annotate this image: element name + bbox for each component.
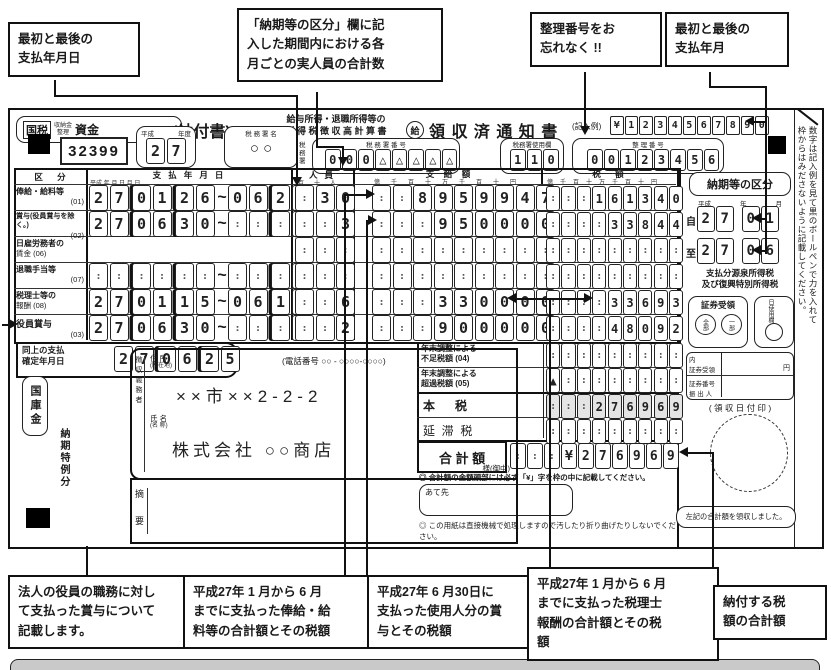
connector-line [686,452,712,454]
era-label: 平成 [141,128,154,138]
arrowhead [679,447,688,457]
registration-mark [768,136,786,154]
noki-kubun-title: 納期等の区分 [689,172,791,196]
salary-circle-mark: 給 [406,121,424,139]
yen-label: 円 [783,363,790,373]
row-02-pay-cells[interactable]: 950000 [372,211,557,237]
row-01-tax-cells[interactable]: 161340 [546,186,684,211]
seiri-number-header: 整 理 番 号 [573,139,723,149]
page: 最初と最後の支払年月日 「納期等の区分」欄に記入した期間内における各月ごとの実人… [0,0,831,670]
row-07-people-cells[interactable] [295,263,357,289]
registration-mark [28,134,50,154]
noki-from-cells[interactable]: 2701 [697,206,780,232]
callout-first-last-pay-date: 最初と最後の支払年月日 [8,22,140,77]
hontax-cells[interactable]: 276969 [546,394,684,419]
row-03-tax-cells[interactable]: 48092 [546,316,684,341]
fund-label-seiri: 整理 [54,130,72,137]
receipt-date-stamp-label: ( 領 収 日 付 印 ) [687,402,793,414]
receipt-date-stamp-circle[interactable] [710,414,788,492]
arrowhead [366,189,375,199]
tokurei-label: 納期特例分 [56,428,71,488]
treasury-seal: 国庫金 [22,376,48,436]
connector-line [712,452,714,585]
side-note-line2: 枠からはみださないように記載してください。 [796,126,807,534]
row-label-02: 賞与(役員賞与を除く。)(02) [16,213,84,240]
row-02-people-cells[interactable]: 3 [295,211,357,237]
row-03-pay-cells[interactable]: 900000 [372,315,557,341]
row-08-date-cells[interactable]: 270115~0615 [89,289,312,315]
stamp-part[interactable]: 一部 [721,314,742,335]
connector-line [344,194,368,196]
fund-label-shikin: 資金 [75,121,99,138]
fusoku-cells[interactable] [546,343,684,368]
tax-office-name-header: 税 務 署 名 [225,128,297,138]
callout-seiri-number: 整理番号をお忘れなく !! [530,12,662,67]
kakutei-label: 同上の支払 確定年月日 [22,345,65,367]
address-label: 住 所 (所在地) [150,354,172,370]
arrowhead [9,319,18,329]
payment-slip-form: 国税 収納金 整理 資金 (納付書) 給与所得・退職所得等の 所 得 税 徴 収… [8,108,824,549]
connector-line [765,86,767,254]
noki-to-cells[interactable]: 2706 [697,238,780,264]
fiscal-year-box: 平成 年度 27 [136,126,196,168]
received-total-pill: 左記の合計額を領収しました。 [676,506,796,528]
choka-cells[interactable]: ▲ [546,368,684,393]
arrowhead [507,293,516,303]
arrowhead [580,126,590,135]
nendo-label: 年度 [178,128,191,138]
total-amount-cells[interactable]: ¥276969 [510,443,680,469]
next-section-bar [10,659,820,670]
row-08-tax-cells[interactable]: 33693 [546,290,684,315]
date-stamp-use-label: 日使用欄 [766,299,775,323]
callout-salary-total: 平成27年 1 月から 6 月までに支払った俸給・給料等の合計額とその税額 [183,575,377,649]
connector-line [549,298,551,567]
row-07-pay-cells[interactable] [372,263,557,289]
entai-cells[interactable] [546,419,684,444]
connector-line [296,95,298,179]
form-code-box: 32399 [60,137,128,165]
connector-line [752,121,766,123]
row-01-people-cells[interactable]: 30 [295,185,357,211]
connector-line [54,95,298,97]
address-value: ××市××2-2-2 [176,382,322,407]
callout-total-tax: 納付する税額の合計額 [713,585,827,640]
securities-receipt-box: 証券受領 全部 一部 [688,296,748,348]
row-03-people-cells[interactable]: 2 [295,315,357,341]
phone-number: (電話番号 ○○ - ○○○○-○○○○) [282,355,386,367]
tax-office-name-box[interactable]: 税 務 署 名 ○ ○ [224,126,298,168]
row-02-tax-cells[interactable]: 33844 [546,212,684,237]
arrowhead [368,215,377,225]
date-stamp-use-box: 日使用欄 [754,296,794,348]
registration-mark [26,508,50,528]
row-08-people-cells[interactable]: 6 [295,289,357,315]
callout-zeirishi-fee: 平成27年 1 月から 6 月までに支払った税理士報酬の合計額とその税額 [527,567,719,661]
row-06-pay-cells[interactable] [372,237,557,263]
arrowhead [338,157,348,166]
row-01-date-cells[interactable]: 270126~0625 [89,185,312,211]
tax-office-name-value: ○ ○ [225,140,297,157]
arrowhead [745,116,754,126]
connector-line [316,92,318,148]
callout-first-last-pay-month: 最初と最後の支払年月 [665,12,789,67]
corner-fold-mark [797,108,819,126]
securities-receipt-label: 証券受領 [689,299,747,311]
tekiyo-box[interactable]: 摘 要 [130,478,518,544]
stamp-all[interactable]: 全部 [695,314,716,335]
name-label: 氏 名 (名 称) [150,414,168,430]
tekiyo-label: 摘 要 [135,488,148,534]
noki-to-label: 至 [686,245,696,260]
connector-line [366,220,368,575]
connector-line [86,546,88,575]
payer-box[interactable]: 徴収義務者 住 所 (所在地) (電話番号 ○○ - ○○○○-○○○○) ××… [130,348,518,480]
connector-line [709,86,767,88]
row-03-date-cells[interactable]: 270630~ [89,315,312,341]
tax-office-suffix: 税務署 [299,142,308,165]
row-07-tax-cells[interactable] [546,264,684,289]
row-08-pay-cells[interactable]: 330000 [372,289,557,315]
fiscal-year-cells[interactable]: 27 [146,138,187,164]
fund-label-shunokin: 収納金 [54,123,72,130]
callout-officer-bonus: 法人の役員の職務に対して支払った賞与について記載します。 [8,575,196,649]
arrowhead [752,213,761,223]
callout-personnel-count: 「納期等の区分」欄に記入した期間内における各月ごとの実人員の合計数 [237,8,443,82]
collector-label: 徴収義務者 [133,356,145,472]
connector-line [344,194,346,575]
callout-employee-bonus: 平成27年 6 月30日に支払った使用人分の賞与とその税額 [367,575,537,649]
connector-line [514,298,586,300]
side-instruction-note: 数字は記入例を見て黒のボールペンで力を入れて 枠からはみださないように記載してく… [796,126,818,534]
row-label-03: 役員賞与(03) [16,319,84,340]
row-label-08: 税理士等の報酬 (08) [16,291,84,310]
securities-detail-table[interactable]: 内 証券受領 円 証券番号 振 出 人 [686,352,794,400]
noki-description: 支払分源泉所得税 及び復興特別所得税 [687,268,793,291]
name-value: 株式会社 ○○商店 [172,436,335,461]
calc-title-line1: 給与所得・退職所得等の [276,114,396,126]
row-07-date-cells[interactable]: ~ [89,263,312,289]
side-note-line1: 数字は記入例を見て黒のボールペンで力を入れて [807,126,818,534]
arrowhead [584,293,593,303]
noki-from-label: 自 [686,213,696,228]
row-06-people-cells[interactable] [295,237,357,263]
connector-line [316,146,344,148]
strip-divider [794,110,795,547]
arrowhead [752,245,761,255]
arrowhead [292,177,302,186]
date-stamp-circle[interactable] [765,323,783,341]
row-label-01: 俸給・給料等(01) [16,187,84,206]
row-label-07: 退職手当等(07) [16,265,84,284]
row-06-tax-cells[interactable] [546,238,684,263]
column-divider [543,342,544,438]
row-01-pay-cells[interactable]: 8959947 [372,185,557,211]
office-use-header: 税務署使用欄 [501,139,563,149]
row-02-date-cells[interactable]: 270630~ [89,211,312,237]
connector-line [584,72,586,128]
col-header-kubun: 区 分 [14,171,86,183]
honorific-label: 様(御中) [483,463,511,474]
row-label-06: 日雇労務者の賃金 (06) [16,239,84,258]
